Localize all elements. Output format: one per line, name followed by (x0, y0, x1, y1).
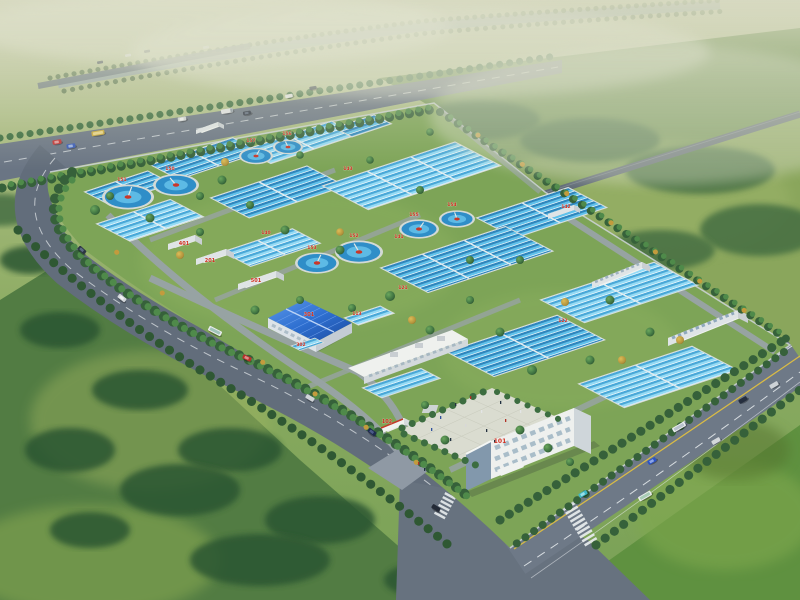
clarifier-label-155: 155 (409, 212, 418, 218)
clarifier-tank (439, 210, 475, 227)
building-label-201: 201 (205, 258, 216, 264)
roof-unit (437, 336, 445, 341)
haze-overlay (0, 0, 800, 185)
clarifier-label-151: 151 (117, 177, 126, 183)
roof-unit (390, 352, 398, 357)
aerial-rendering-canvas: 1011022013013024015011401411421431211221… (0, 0, 800, 600)
treatment-plant-scene: 1011022013013024015011401411421431211221… (0, 0, 800, 600)
office-side-face (574, 408, 591, 454)
roof-unit (415, 343, 423, 348)
clarifier-tank (399, 219, 439, 238)
basin-label-141: 141 (394, 234, 403, 240)
basin-label-121: 121 (398, 285, 407, 291)
basin-label-142: 142 (561, 204, 570, 210)
building-label-501: 501 (251, 278, 262, 284)
clarifier-label-152: 152 (349, 233, 358, 239)
basin-label-140: 140 (261, 230, 270, 236)
clarifier-tank (295, 252, 339, 273)
building-label-102: 102 (382, 419, 393, 425)
building-label-302: 302 (296, 342, 305, 348)
clarifier-label-153: 153 (307, 245, 316, 251)
building-label-301: 301 (304, 312, 315, 318)
clarifier-tank (153, 174, 199, 196)
building-label-401: 401 (179, 241, 190, 247)
basin-label-113: 113 (352, 311, 361, 317)
basin-label-122: 122 (558, 318, 567, 324)
clarifier-label-154: 154 (447, 202, 456, 208)
building-label-101: 101 (494, 438, 507, 445)
